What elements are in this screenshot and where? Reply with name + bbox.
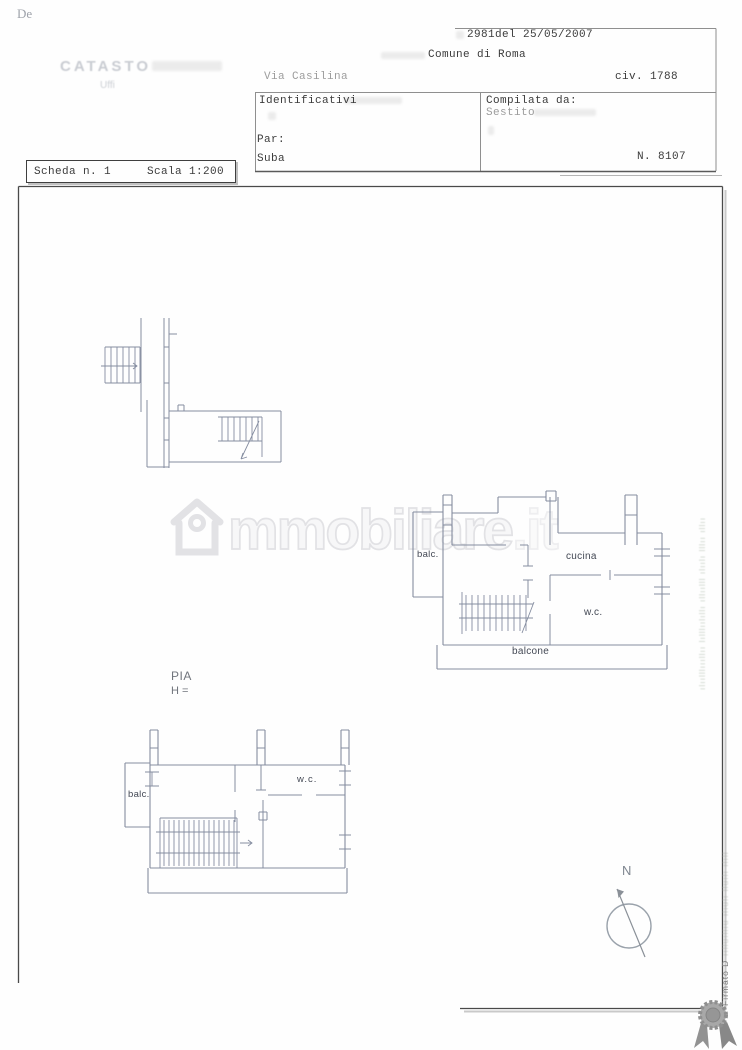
room-label-balcone: balcone [512, 646, 549, 657]
civic-number: civ. 1788 [615, 71, 678, 83]
corner-note: De [17, 6, 32, 22]
room-label-wc-middle: w.c. [584, 607, 602, 618]
room-label-cucina: cucina [566, 551, 597, 562]
altezza-caption: H = [171, 685, 188, 697]
floor-plan-lower [125, 730, 351, 893]
floor-plan-middle [413, 491, 670, 669]
scheda-scala-box: Scheda n. 1 Scala 1:200 [26, 160, 236, 183]
drawing-layer [0, 0, 742, 1050]
sheet-border [19, 187, 727, 1012]
scheda-label: Scheda n. 1 [34, 166, 111, 178]
identificativi-label: Identificativi [259, 95, 357, 107]
compilata-label: Compilata da: [486, 95, 577, 107]
compass-north-label: N [622, 863, 631, 878]
catasto-office-line: Uffi [100, 80, 115, 91]
piano-caption: PIA [171, 669, 192, 683]
comune-line: Comune di Roma [428, 49, 526, 61]
street-line: Via Casilina [264, 71, 348, 83]
room-label-balc-middle: balc. [417, 549, 439, 560]
particella-label: Par: [257, 134, 285, 146]
catasto-letterhead: CATASTO [60, 58, 151, 75]
vertical-stamp-firmato: Firmato D ıılluıllıu ılıulı lluılı ılıll [720, 672, 730, 1006]
north-compass-icon [607, 889, 651, 957]
vertical-stamp-green: ılıılllıııllıı lılllıılıllı ıllıılll ılı… [697, 374, 707, 690]
compilata-name: Sestito [486, 107, 535, 119]
firmato-tail: ıılluıllıu ılıulı lluılı ılıll [720, 852, 730, 957]
floor-plan-upper [101, 318, 281, 468]
subalterno-label: Suba [257, 153, 285, 165]
firmato-text: Firmato D [720, 960, 730, 1006]
room-label-wc-lower: w.c. [297, 774, 317, 785]
sheet-number: N. 8107 [637, 151, 686, 163]
room-label-balc-lower: balc. [128, 789, 150, 800]
scanned-cadastral-document: De CATASTO Uffi 2981del 25/05/2007 Comun… [0, 0, 742, 1050]
protocol-number: 2981del 25/05/2007 [467, 29, 593, 41]
scala-label: Scala 1:200 [147, 166, 224, 178]
